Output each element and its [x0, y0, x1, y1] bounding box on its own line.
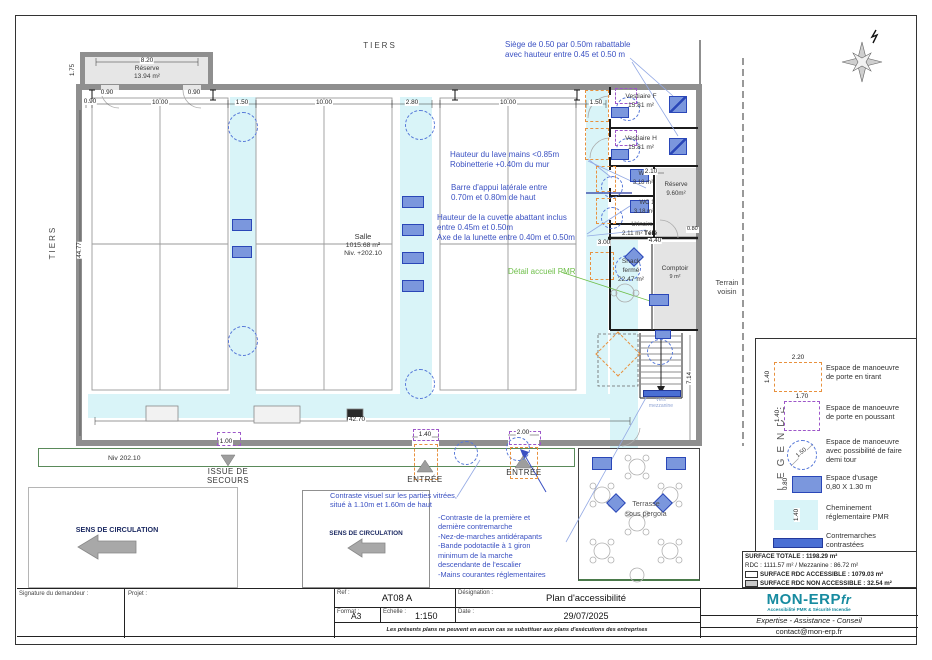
legend-dim-h5: 1.40: [794, 508, 800, 522]
dim-2-10: 2.10: [644, 169, 658, 175]
legend-dim-h4: 0.80: [783, 477, 789, 491]
mezzanine-label: mezzanine: [649, 404, 673, 410]
terrasse-label: sous pergola: [625, 510, 666, 518]
legend-contremarche: [773, 538, 823, 548]
dim-0-90: 0.90: [100, 90, 114, 96]
contremarche-bar: [643, 390, 681, 397]
surface-row: SURFACE RDC NON ACCESSIBLE : 32.54 m²: [745, 580, 892, 587]
room-area-urinoirs: 2.11 m²: [622, 230, 643, 237]
terrain-voisin-label: voisin: [717, 288, 736, 297]
surface-row: RDC : 1111.57 m² / Mezzanine : 86.72 m²: [745, 562, 858, 569]
cell-date: Date : 29/07/2025: [455, 608, 700, 623]
tiers-left-label: TIERS: [48, 226, 57, 260]
mon-erp-logo: MON-ERPfr: [767, 591, 852, 608]
terrasse-label: Terrasse: [632, 500, 660, 508]
espace-usage: [232, 246, 252, 258]
room-label-urinoirs: Urinoirs: [631, 221, 652, 228]
accessible-swatch: [745, 571, 758, 578]
legend-dim-w2: 1.70: [795, 394, 809, 400]
room-area-salle: 1015.68 m²: [346, 242, 380, 250]
room-label-salle: Salle: [355, 233, 372, 242]
legend-dim-w1: 2.20: [791, 355, 805, 361]
room-label-vestiaire-h: Vestiaire H: [625, 135, 657, 143]
entree-label-1: ENTRÉE: [407, 475, 442, 484]
annotation-escalier: -Contraste de la première et dernière co…: [438, 513, 546, 579]
room-area-comptoir: 9 m²: [670, 274, 681, 280]
room-area-snack: 22.47 m²: [618, 276, 644, 284]
panel-sens-1: [28, 487, 238, 588]
dim-10-00: 10.00: [499, 100, 517, 106]
disclaimer-text: Les présents plans ne peuvent en aucun c…: [387, 627, 648, 633]
douche-pmr: [669, 96, 687, 113]
non-accessible-swatch: [745, 580, 758, 587]
cell-logo: MON-ERPfr Accessibilité PMR & Sécurité I…: [700, 589, 917, 638]
logo-suffix: fr: [841, 592, 851, 607]
porte-tirant-space: [590, 252, 614, 280]
annotation-detail-pmr: Détail accueil PMR: [508, 267, 576, 276]
designation-value: Plan d'accessibilité: [546, 594, 626, 605]
legend-porte-poussant: [784, 401, 820, 431]
espace-usage: [232, 219, 252, 231]
room-label-reserve-r: Réserve: [664, 181, 687, 188]
cell-disclaimer: Les présents plans ne peuvent en aucun c…: [335, 623, 700, 638]
dim-8-20: 8.20: [140, 58, 154, 64]
espace-usage: [611, 107, 629, 118]
entree-label-2: ENTRÉE: [506, 468, 541, 477]
espace-usage: [402, 224, 424, 236]
demi-tour-circle: [228, 326, 258, 356]
sens-circulation-label-1: SENS DE CIRCULATION: [76, 526, 159, 534]
espace-usage: [655, 330, 671, 339]
dim-7-14: 7.14: [687, 371, 693, 385]
porte-tirant-space: [585, 128, 609, 160]
logo-email: contact@mon-erp.fr: [776, 628, 842, 637]
espace-usage: [402, 252, 424, 264]
room-label-comptoir: Comptoir: [662, 265, 689, 273]
annotation-vitrage: Contraste visuel sur les parties vitrées…: [330, 491, 457, 510]
dim-1-40: 1.40: [418, 432, 432, 438]
dim-0-90: 0.90: [83, 99, 97, 105]
cell-projet: Projet :: [125, 589, 335, 638]
legend-label-3: demi tour: [826, 456, 856, 465]
cell-signature: Signature du demandeur :: [17, 589, 125, 638]
room-label-wc-2: WC 1: [640, 200, 655, 207]
annotation-barre-appui: Barre d'appui latérale entre 0.70m et 0.…: [451, 183, 547, 203]
espace-usage: [402, 280, 424, 292]
espace-usage: [649, 294, 669, 306]
dim-1-00: 1.00: [219, 439, 233, 445]
room-area-reserve-tl: 13.94 m²: [134, 73, 160, 81]
espace-usage: [592, 457, 612, 470]
espace-usage: [402, 196, 424, 208]
dim-1-50: 1.50: [235, 100, 249, 106]
logo-tagline: Accessibilité PMR & Sécurité Incendie: [767, 607, 850, 612]
legend-espace-usage: [792, 476, 822, 493]
demi-tour-circle: [228, 112, 258, 142]
room-area-reserve-r: 9.60m²: [666, 190, 685, 197]
issue-secours-label: SECOURS: [207, 477, 249, 486]
room-area-vestiaire-f: 15.81 m²: [628, 102, 654, 110]
dim-42-70: 42.70: [348, 417, 366, 423]
legend-dim-h2: 1.40: [775, 409, 781, 423]
format-value: A3: [351, 612, 361, 622]
dim-0-90: 0.90: [187, 90, 201, 96]
room-label-reserve-tl: Réserve: [135, 65, 160, 73]
echelle-value: 1:150: [415, 611, 438, 621]
legend-label-4: 0,80 X 1.30 m: [826, 483, 871, 492]
legend-porte-tirant: [774, 362, 822, 392]
surface-row: SURFACE TOTALE : 1198.29 m²: [745, 553, 837, 560]
douche-pmr: [669, 138, 687, 155]
title-block: Signature du demandeur : Projet : Ref : …: [17, 588, 917, 637]
espace-usage: [611, 149, 629, 160]
room-label-vestiaire-f: Vestiaire F: [625, 93, 656, 101]
sens-circulation-label-2: SENS DE CIRCULATION: [329, 530, 402, 537]
dim-3-00: 3.00: [597, 240, 611, 246]
tiers-top-label: TIERS: [363, 41, 397, 50]
cell-ref: Ref : AT08 A: [335, 589, 455, 608]
espace-usage: [666, 457, 686, 470]
niv-label: Niv 202.10: [108, 455, 141, 463]
dim-10-00: 10.00: [151, 100, 169, 106]
annotation-siege: Siège de 0.50 par 0.50m rabattable avec …: [505, 40, 630, 60]
dim-10-00: 10.00: [315, 100, 333, 106]
dim-4-40: 4.40: [648, 238, 662, 244]
cell-format: Format : A3: [335, 608, 380, 623]
designation-label: Désignation :: [458, 590, 493, 597]
dim-1-75: 1.75: [70, 63, 76, 77]
porte-tirant-space: [596, 198, 616, 224]
date-label: Date :: [458, 609, 474, 616]
ref-value: AT08 A: [382, 594, 412, 605]
room-area-wc-2: 3.18 m²: [634, 209, 654, 216]
surface-table: SURFACE TOTALE : 1198.29 m² RDC : 1111.5…: [742, 551, 917, 588]
legend-label-6: contrastées: [826, 541, 864, 550]
ref-label: Ref :: [337, 590, 350, 597]
annotation-cuvette: Hauteur de la cuvette abattant inclus en…: [437, 213, 575, 243]
cell-echelle: Echelle : 1:150: [380, 608, 455, 623]
dim-44-77: 44.77: [77, 241, 83, 258]
dim-2-80: 2.80: [405, 100, 419, 106]
demi-tour-circle: [405, 369, 435, 399]
room-label-snack: Snack: [622, 258, 640, 266]
plan-sheet: TIERS TIERS Terrain voisin 8.20 Réserve …: [0, 0, 932, 660]
demi-tour-circle: [405, 110, 435, 140]
porte-tirant-space: [596, 166, 616, 192]
cell-designation: Désignation : Plan d'accessibilité: [455, 589, 700, 608]
room-level-salle: Niv. +202.10: [344, 250, 382, 258]
room-area-wc-1: 3.18 m²: [633, 180, 653, 187]
room-status-snack: fermé: [623, 267, 640, 275]
dim-0-80: 0.80: [686, 227, 699, 233]
legend-dim-h1: 1.40: [765, 370, 771, 384]
demi-tour-circle: [647, 339, 673, 365]
legend-label-2: de porte en poussant: [826, 413, 895, 422]
logo-line: Expertise - Assistance - Conseil: [756, 617, 862, 626]
room-area-vestiaire-h: 15.81 m²: [628, 144, 654, 152]
legend-label-1: de porte en tirant: [826, 373, 881, 382]
surface-row: SURFACE RDC ACCESSIBLE : 1079.03 m²: [745, 571, 883, 578]
echelle-label: Echelle :: [383, 609, 406, 616]
demi-tour-circle: [454, 441, 478, 465]
date-value: 29/07/2025: [563, 611, 608, 621]
legend-label-5: réglementaire PMR: [826, 513, 889, 522]
dim-1-50: 1.50: [589, 100, 603, 106]
dim-2-00: 2.00: [516, 430, 530, 436]
annotation-lave-mains: Hauteur du lave mains <0.85m Robinetteri…: [450, 150, 559, 170]
